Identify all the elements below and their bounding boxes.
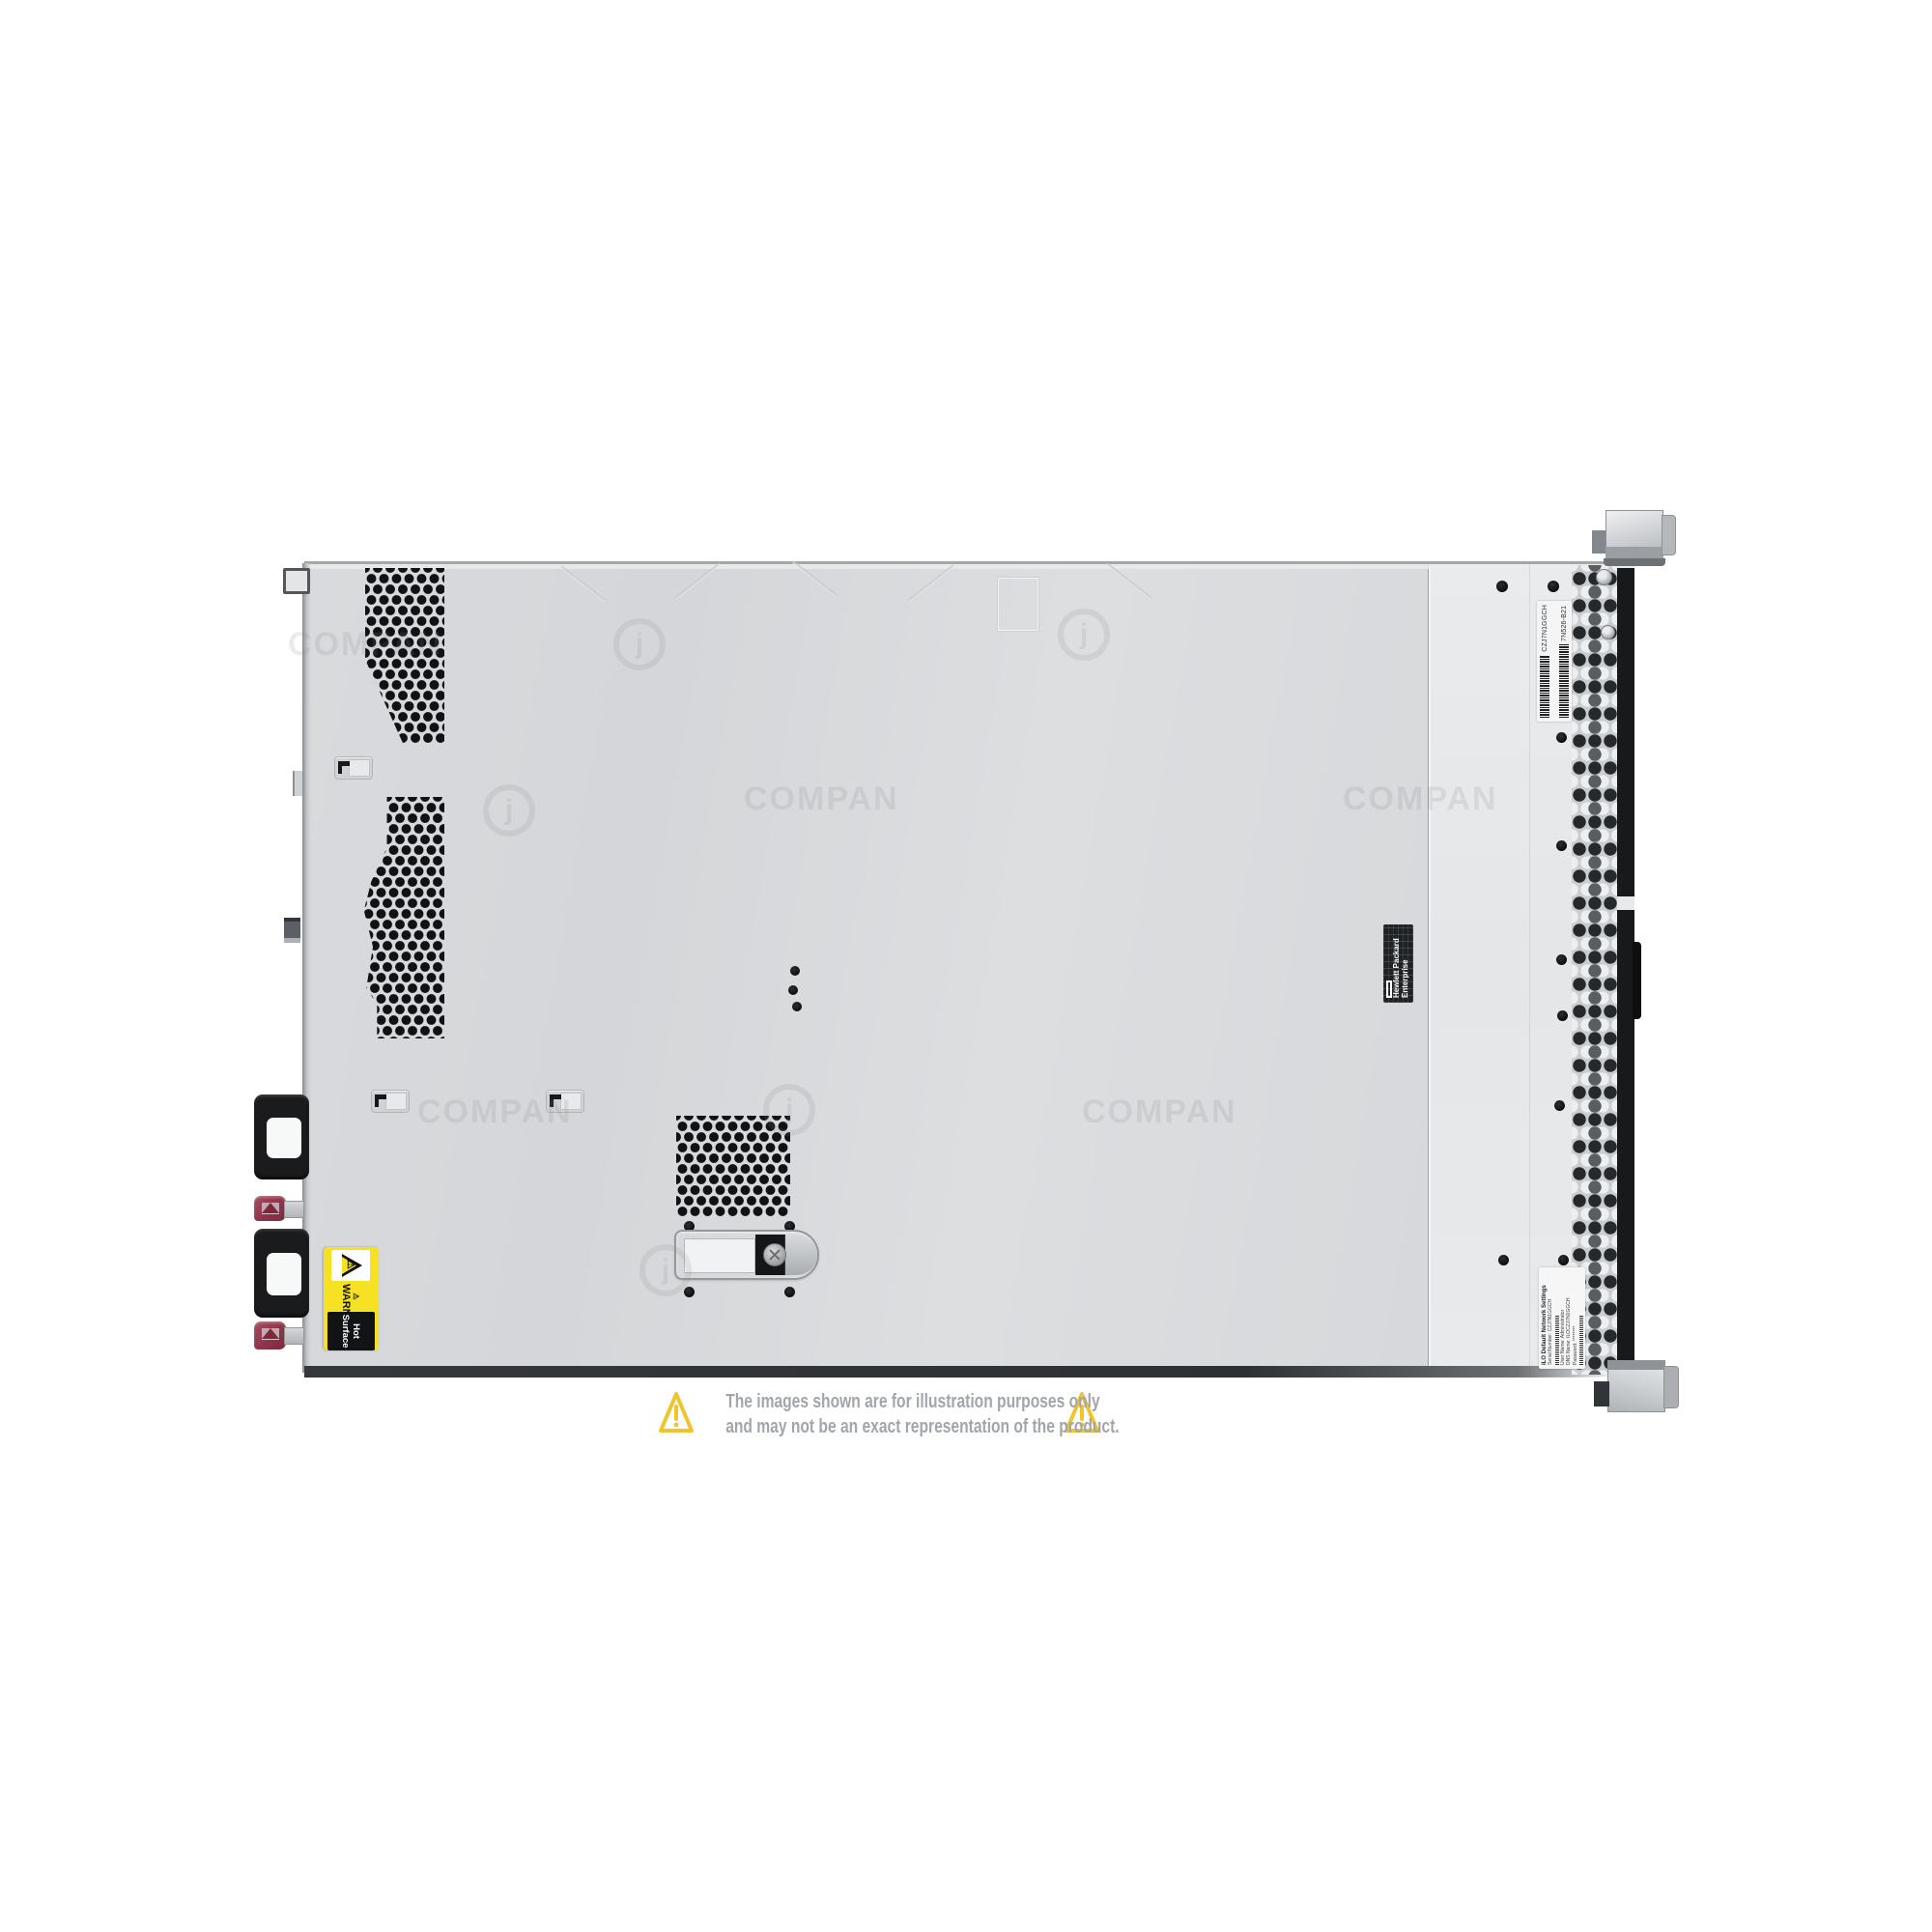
cover-hole xyxy=(792,1002,802,1011)
psu-release-latch-2 xyxy=(254,1321,286,1350)
hood-latch-plate xyxy=(684,1238,755,1273)
rear-bracket-tab xyxy=(283,568,310,594)
watermark-logo-icon: j xyxy=(639,1244,692,1296)
rack-ear-bottom-lip xyxy=(1607,1360,1665,1370)
server-top-cover xyxy=(304,563,1428,1377)
front-hole xyxy=(1556,954,1567,965)
screw-icon xyxy=(1601,625,1615,639)
cover-hole xyxy=(684,1287,695,1297)
front-hole xyxy=(1558,1255,1569,1265)
hood-latch-cap xyxy=(784,1235,817,1275)
psu-handle-1 xyxy=(254,1094,309,1179)
barcode-icon xyxy=(1579,1315,1583,1365)
rear-clip xyxy=(284,918,300,943)
watermark-text: COMPAN xyxy=(1082,1094,1237,1131)
disclaimer-line-2: and may not be an exact representation o… xyxy=(725,1414,1042,1439)
ilo-password-text: Password: ******** xyxy=(1573,1271,1579,1365)
warning-mini-icon: ⚠ xyxy=(352,1284,362,1309)
rack-ear-top-shadow xyxy=(1604,558,1665,566)
chassis-top-edge-highlight xyxy=(304,564,1634,569)
barcode-icon xyxy=(1540,655,1549,718)
front-bezel-hex-vents xyxy=(1572,565,1617,1375)
cover-latch-tab-face xyxy=(349,759,370,777)
front-hole xyxy=(1548,581,1559,592)
hpe-brand-label: Hewlett Packard Enterprise xyxy=(1383,924,1413,1003)
watermark-text: COMPAN xyxy=(288,626,443,664)
front-hole xyxy=(1557,1010,1568,1021)
rack-ear-top-lip xyxy=(1605,547,1663,558)
cover-emboss-rect xyxy=(998,578,1038,631)
watermark-text: COMPAN xyxy=(744,781,899,818)
ilo-settings-label: iLO Default Network Settings Serial Numb… xyxy=(1539,1267,1585,1369)
rack-ear-bottom-cap xyxy=(1663,1366,1679,1408)
cover-hole xyxy=(784,1287,795,1297)
psu-handle-opening xyxy=(267,1253,301,1295)
cover-latch-tab-face xyxy=(385,1093,407,1110)
watermark-logo-icon: j xyxy=(613,618,666,670)
psu-handle-opening xyxy=(267,1118,301,1158)
barcode-icon xyxy=(1559,644,1569,718)
warning-label-text: ⚠ WARNING: xyxy=(341,1284,362,1309)
screw-icon xyxy=(1596,569,1612,585)
hot-surface-warning-label: ⚠ ⚠ WARNING: Hot Surface xyxy=(324,1247,379,1350)
front-hole xyxy=(1556,732,1567,743)
product-photo-canvas: ⚠ ⚠ WARNING: Hot Surface Hewlett Packard… xyxy=(0,0,1932,1932)
cover-hole xyxy=(788,985,798,995)
cover-latch-tab xyxy=(334,756,373,780)
warning-triangle-icon: ⚠ xyxy=(332,1250,371,1281)
hood-latch xyxy=(674,1230,819,1280)
chassis-bottom-edge-shadow xyxy=(304,1366,1608,1378)
cover-hole xyxy=(790,966,800,976)
rack-ear-bottom-clip xyxy=(1594,1381,1609,1406)
psu-latch-tip-1 xyxy=(284,1201,304,1218)
part-number-text: 7N526-B21 xyxy=(1561,606,1568,641)
watermark-logo-icon: j xyxy=(483,784,535,837)
front-hole xyxy=(1496,581,1508,592)
front-panel-seam xyxy=(1529,563,1530,1377)
hot-surface-text: Hot Surface xyxy=(327,1312,375,1350)
hpe-label-line2: Enterprise xyxy=(1402,929,1410,998)
front-bezel-gap xyxy=(1617,896,1634,910)
watermark-logo-icon: j xyxy=(1058,609,1110,661)
latch-triangle-emboss xyxy=(262,1203,279,1213)
psu-latch-tip-2 xyxy=(284,1327,304,1345)
psu-release-latch-1 xyxy=(254,1196,286,1221)
watermark-logo-icon: j xyxy=(763,1084,815,1136)
watermark-text: COMPAN xyxy=(417,1094,573,1131)
front-bezel-latch-tab xyxy=(1633,942,1641,1019)
cover-latch-pin xyxy=(338,761,350,766)
watermark-text: COMPAN xyxy=(1343,781,1498,818)
serial-number-text: CZJ7N1GGCH xyxy=(1542,605,1548,652)
torx-screw-icon xyxy=(763,1243,786,1266)
serial-barcode-label: CZJ7N1GGCH 7N526-B21 xyxy=(1537,601,1572,722)
barcode-icon xyxy=(1555,1315,1559,1365)
disclaimer-line-1: The images shown are for illustration pu… xyxy=(725,1389,1042,1414)
front-hole xyxy=(1498,1255,1509,1265)
disclaimer: The images shown are for illustration pu… xyxy=(681,1389,1087,1439)
cover-latch-tab xyxy=(371,1090,410,1113)
ilo-serial-text: Serial Number: CZJ7N1GGCH xyxy=(1548,1271,1554,1365)
cover-latch-pin xyxy=(375,1094,386,1099)
rear-notch xyxy=(293,771,302,796)
psu-handle-2 xyxy=(254,1229,309,1318)
front-hole xyxy=(1554,1100,1565,1111)
front-hole xyxy=(1556,840,1567,851)
latch-triangle-emboss xyxy=(262,1328,279,1339)
rack-ear-top-cap xyxy=(1662,515,1676,555)
